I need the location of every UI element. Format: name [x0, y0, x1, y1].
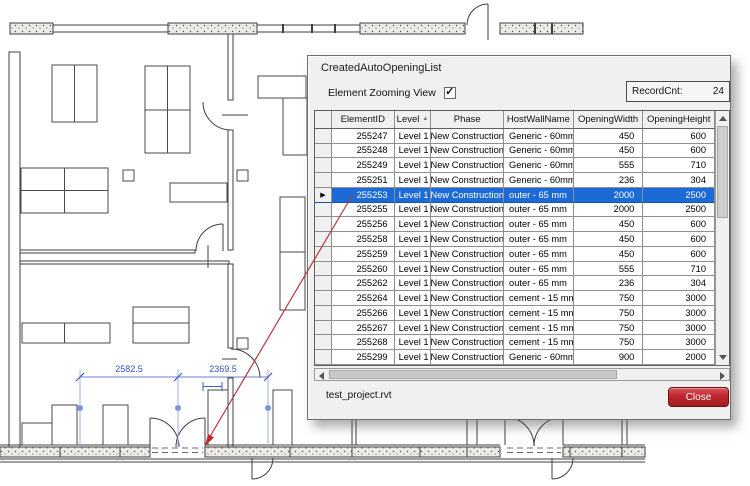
scroll-up-icon[interactable]	[719, 116, 727, 121]
table-row[interactable]: 255247Level 1New ConstructionGeneric - 6…	[315, 129, 715, 144]
cell-height[interactable]: 304	[643, 173, 715, 188]
cell-id[interactable]: 255253	[332, 188, 395, 203]
cell-id[interactable]: 255259	[332, 247, 395, 262]
cell-id[interactable]: 255260	[332, 262, 395, 277]
header-level[interactable]: Level ▲	[395, 111, 432, 128]
cell-rowhead[interactable]	[315, 262, 332, 277]
cell-width[interactable]: 555	[574, 262, 644, 277]
cell-width[interactable]: 750	[574, 321, 644, 336]
cell-id[interactable]: 255268	[332, 335, 395, 350]
scroll-left-icon[interactable]	[319, 372, 324, 380]
header-row-selector	[315, 111, 332, 128]
table-row[interactable]: 255260Level 1New Constructionouter - 65 …	[315, 262, 715, 277]
table-row[interactable]: 255266Level 1New Constructioncement - 15…	[315, 306, 715, 321]
cell-host[interactable]: cement - 15 mm	[504, 335, 574, 350]
cell-phase[interactable]: New Construction	[431, 262, 504, 277]
cell-rowhead[interactable]	[315, 335, 332, 350]
cell-phase[interactable]: New Construction	[431, 232, 504, 247]
cell-height[interactable]: 600	[643, 232, 715, 247]
table-row[interactable]: 255255Level 1New Constructionouter - 65 …	[315, 203, 715, 218]
cell-phase[interactable]: New Construction	[431, 291, 504, 306]
table-row[interactable]: 255267Level 1New Constructioncement - 15…	[315, 321, 715, 336]
cell-id[interactable]: 255248	[332, 144, 395, 159]
table-row[interactable]: ▶255253Level 1New Constructionouter - 65…	[315, 188, 715, 203]
cell-id[interactable]: 255266	[332, 306, 395, 321]
cell-height[interactable]: 3000	[643, 291, 715, 306]
cell-rowhead[interactable]	[315, 203, 332, 218]
cell-phase[interactable]: New Construction	[431, 144, 504, 159]
cell-phase[interactable]: New Construction	[431, 335, 504, 350]
cell-height[interactable]: 600	[643, 129, 715, 144]
table-row[interactable]: 255268Level 1New Constructioncement - 15…	[315, 335, 715, 350]
cell-width[interactable]: 450	[574, 232, 644, 247]
cell-rowhead[interactable]	[315, 158, 332, 173]
cell-level[interactable]: Level 1	[395, 350, 432, 365]
table-row[interactable]: 255299Level 1New ConstructionGeneric - 6…	[315, 350, 715, 365]
revit-canvas: 2582.5 2369.5 CreatedAutoOpeningList Ele…	[0, 0, 750, 486]
project-file-name: test_project.rvt	[326, 390, 392, 401]
cell-width[interactable]: 750	[574, 291, 644, 306]
created-auto-opening-list-dialog: CreatedAutoOpeningList Element Zooming V…	[307, 55, 731, 420]
cell-rowhead[interactable]	[315, 350, 332, 365]
table-body: 255247Level 1New ConstructionGeneric - 6…	[315, 129, 715, 365]
cell-host[interactable]: cement - 15 mm	[504, 306, 574, 321]
cell-rowhead[interactable]	[315, 321, 332, 336]
cell-level[interactable]: Level 1	[395, 247, 432, 262]
cell-id[interactable]: 255262	[332, 276, 395, 291]
cell-host[interactable]: outer - 65 mm	[504, 217, 574, 232]
cell-height[interactable]: 600	[643, 217, 715, 232]
furniture	[21, 65, 307, 445]
table-row[interactable]: 255251Level 1New ConstructionGeneric - 6…	[315, 173, 715, 188]
cell-level[interactable]: Level 1	[395, 232, 432, 247]
cell-height[interactable]: 2000	[643, 350, 715, 365]
cell-rowhead[interactable]	[315, 306, 332, 321]
cell-width[interactable]: 236	[574, 276, 644, 291]
cell-height[interactable]: 3000	[643, 335, 715, 350]
cell-host[interactable]: cement - 15 mm	[504, 291, 574, 306]
element-zooming-view-checkbox[interactable]: Element Zooming View ✓	[328, 85, 456, 100]
cell-phase[interactable]: New Construction	[431, 158, 504, 173]
cell-level[interactable]: Level 1	[395, 129, 432, 144]
cell-height[interactable]: 2500	[643, 203, 715, 218]
cell-level[interactable]: Level 1	[395, 335, 432, 350]
sort-ascending-icon: ▲	[422, 116, 428, 122]
checkbox-icon[interactable]: ✓	[444, 87, 456, 99]
cell-host[interactable]: outer - 65 mm	[504, 276, 574, 291]
scroll-down-icon[interactable]	[719, 355, 727, 360]
record-count-box: RecordCnt: 24	[626, 81, 730, 102]
cell-rowhead[interactable]	[315, 232, 332, 247]
cell-width[interactable]: 236	[574, 173, 644, 188]
cell-host[interactable]: outer - 65 mm	[504, 262, 574, 277]
cell-height[interactable]: 710	[643, 262, 715, 277]
table-row[interactable]: 255262Level 1New Constructionouter - 65 …	[315, 276, 715, 291]
cell-phase[interactable]: New Construction	[431, 188, 504, 203]
cell-host[interactable]: outer - 65 mm	[504, 188, 574, 203]
cell-height[interactable]: 710	[643, 158, 715, 173]
cell-phase[interactable]: New Construction	[431, 350, 504, 365]
cell-rowhead[interactable]	[315, 217, 332, 232]
cell-rowhead[interactable]	[315, 291, 332, 306]
cell-rowhead[interactable]	[315, 129, 332, 144]
cell-phase[interactable]: New Construction	[431, 306, 504, 321]
cell-level[interactable]: Level 1	[395, 188, 432, 203]
cell-height[interactable]: 2500	[643, 188, 715, 203]
cell-level[interactable]: Level 1	[395, 203, 432, 218]
table-row[interactable]: 255249Level 1New ConstructionGeneric - 6…	[315, 158, 715, 173]
cell-phase[interactable]: New Construction	[431, 203, 504, 218]
cell-height[interactable]: 3000	[643, 306, 715, 321]
cell-rowhead[interactable]	[315, 276, 332, 291]
vertical-scrollbar[interactable]	[715, 111, 729, 365]
cell-width[interactable]: 450	[574, 247, 644, 262]
record-count-label: RecordCnt:	[632, 86, 683, 97]
cell-level[interactable]: Level 1	[395, 306, 432, 321]
table-row[interactable]: 255248Level 1New ConstructionGeneric - 6…	[315, 144, 715, 159]
cell-id[interactable]: 255258	[332, 232, 395, 247]
cell-id[interactable]: 255299	[332, 350, 395, 365]
cell-host[interactable]: Generic - 60mm	[504, 350, 574, 365]
cell-level[interactable]: Level 1	[395, 262, 432, 277]
cell-width[interactable]: 2000	[574, 203, 644, 218]
horizontal-scroll-thumb[interactable]	[329, 370, 617, 379]
cell-host[interactable]: Generic - 60mm	[504, 129, 574, 144]
table-row[interactable]: 255259Level 1New Constructionouter - 65 …	[315, 247, 715, 262]
header-phase[interactable]: Phase	[431, 111, 504, 128]
cell-width[interactable]: 450	[574, 217, 644, 232]
cell-host[interactable]: outer - 65 mm	[504, 247, 574, 262]
cell-width[interactable]: 450	[574, 144, 644, 159]
cell-width[interactable]: 2000	[574, 188, 644, 203]
dialog-title: CreatedAutoOpeningList	[321, 62, 441, 74]
header-hostwallname[interactable]: HostWallName	[504, 111, 574, 128]
cell-host[interactable]: cement - 15 mm	[504, 321, 574, 336]
check-mark-icon: ✓	[445, 87, 454, 97]
cell-host[interactable]: Generic - 60mm	[504, 158, 574, 173]
dimension-label: 2582.5	[115, 364, 143, 374]
cell-host[interactable]: outer - 65 mm	[504, 232, 574, 247]
scroll-right-icon[interactable]	[720, 372, 725, 380]
cell-phase[interactable]: New Construction	[431, 217, 504, 232]
header-elementid[interactable]: ElementID	[332, 111, 395, 128]
cell-phase[interactable]: New Construction	[431, 129, 504, 144]
record-count-value: 24	[713, 86, 724, 97]
cell-level[interactable]: Level 1	[395, 217, 432, 232]
cell-id[interactable]: 255264	[332, 291, 395, 306]
table-header-row: ElementID Level ▲ Phase HostWallName Ope…	[315, 111, 715, 129]
cell-id[interactable]: 255249	[332, 158, 395, 173]
cell-host[interactable]: outer - 65 mm	[504, 203, 574, 218]
cell-phase[interactable]: New Construction	[431, 321, 504, 336]
cell-phase[interactable]: New Construction	[431, 276, 504, 291]
header-openingheight[interactable]: OpeningHeight	[643, 111, 715, 128]
header-openingwidth[interactable]: OpeningWidth	[574, 111, 644, 128]
vertical-scroll-thumb[interactable]	[717, 126, 728, 218]
cell-level[interactable]: Level 1	[395, 276, 432, 291]
cell-width[interactable]: 900	[574, 350, 644, 365]
cell-height[interactable]: 304	[643, 276, 715, 291]
cell-rowhead[interactable]	[315, 173, 332, 188]
cell-height[interactable]: 600	[643, 144, 715, 159]
close-button[interactable]: Close	[668, 387, 729, 407]
cell-id[interactable]: 255251	[332, 173, 395, 188]
dimension-label: 2369.5	[209, 364, 237, 374]
cell-level[interactable]: Level 1	[395, 158, 432, 173]
cell-id[interactable]: 255256	[332, 217, 395, 232]
cell-height[interactable]: 600	[643, 247, 715, 262]
cell-level[interactable]: Level 1	[395, 321, 432, 336]
table-row[interactable]: 255258Level 1New Constructionouter - 65 …	[315, 232, 715, 247]
cell-phase[interactable]: New Construction	[431, 247, 504, 262]
cell-height[interactable]: 3000	[643, 321, 715, 336]
table-row[interactable]: 255256Level 1New Constructionouter - 65 …	[315, 217, 715, 232]
cell-id[interactable]: 255255	[332, 203, 395, 218]
cell-host[interactable]: Generic - 60mm	[504, 144, 574, 159]
table-row[interactable]: 255264Level 1New Constructioncement - 15…	[315, 291, 715, 306]
opening-list-table: ElementID Level ▲ Phase HostWallName Ope…	[314, 110, 730, 366]
horizontal-scrollbar[interactable]	[314, 368, 730, 381]
cell-width[interactable]: 555	[574, 158, 644, 173]
checkbox-label: Element Zooming View	[328, 87, 436, 99]
cell-level[interactable]: Level 1	[395, 173, 432, 188]
cell-level[interactable]: Level 1	[395, 291, 432, 306]
cell-level[interactable]: Level 1	[395, 144, 432, 159]
cell-host[interactable]: Generic - 60mm	[504, 173, 574, 188]
cell-width[interactable]: 750	[574, 306, 644, 321]
cell-phase[interactable]: New Construction	[431, 173, 504, 188]
cell-id[interactable]: 255247	[332, 129, 395, 144]
cell-width[interactable]: 750	[574, 335, 644, 350]
cell-rowhead[interactable]	[315, 247, 332, 262]
cell-width[interactable]: 450	[574, 129, 644, 144]
cell-rowhead[interactable]	[315, 144, 332, 159]
cell-id[interactable]: 255267	[332, 321, 395, 336]
cell-rowhead[interactable]: ▶	[315, 188, 332, 203]
